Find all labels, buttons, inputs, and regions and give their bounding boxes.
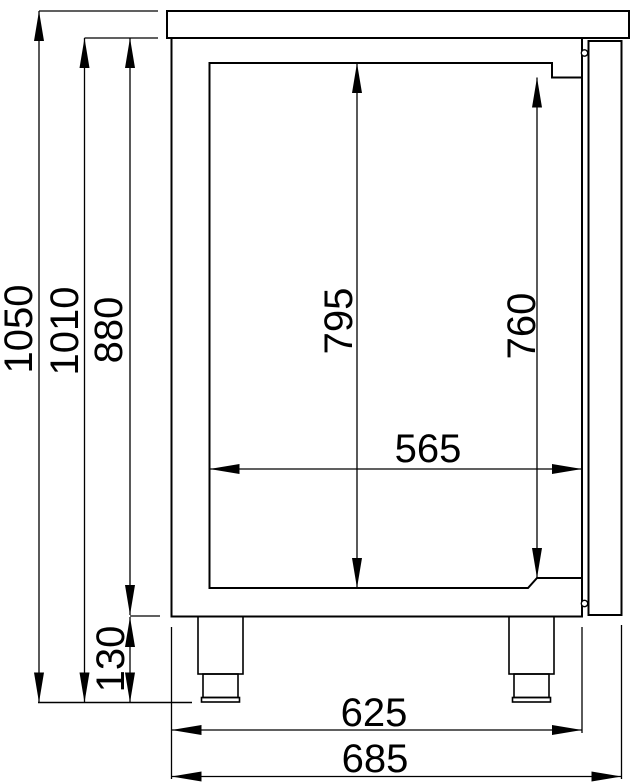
arrowhead-down xyxy=(80,673,90,703)
arrowhead-down xyxy=(125,585,135,615)
dim-height-under-worktop-label: 1010 xyxy=(43,287,87,376)
leg-left xyxy=(198,617,243,703)
dim-interior-depth-label: 565 xyxy=(395,427,462,471)
leg-left-foot xyxy=(203,674,238,698)
arrowhead-down xyxy=(34,673,44,703)
leg-right-foot-pad xyxy=(513,698,551,703)
arrowhead-right xyxy=(552,725,582,735)
dim-interior-height-back: 795 xyxy=(317,63,362,588)
arrowhead-up xyxy=(352,63,362,93)
arrowhead-right xyxy=(552,464,582,474)
dim-leg-height: 130 xyxy=(89,617,135,703)
worktop-outline xyxy=(167,11,629,38)
hinge-pin-top xyxy=(581,50,587,56)
dim-overall-depth-label: 685 xyxy=(342,737,409,781)
arrowhead-right xyxy=(592,772,622,782)
dimension-drawing: 1050 1010 880 130 795 760 xyxy=(0,0,644,783)
arrowhead-up xyxy=(80,38,90,68)
dim-body-height-label: 880 xyxy=(87,297,131,364)
dim-interior-height-front: 760 xyxy=(500,78,544,579)
arrowhead-up xyxy=(125,38,135,68)
arrowhead-down xyxy=(352,558,362,588)
arrowhead-left xyxy=(172,725,202,735)
leg-left-upper xyxy=(198,617,243,675)
leg-right-foot xyxy=(514,674,549,698)
dim-interior-depth: 565 xyxy=(210,427,583,474)
dim-body-depth-label: 625 xyxy=(341,691,408,735)
dim-body-height: 880 xyxy=(87,38,160,616)
dim-interior-height-front-label: 760 xyxy=(500,293,544,360)
arrowhead-up xyxy=(532,78,542,108)
leg-right-upper xyxy=(509,617,554,675)
door-outline xyxy=(589,41,622,615)
arrowhead-left xyxy=(210,464,240,474)
dim-leg-height-label: 130 xyxy=(89,626,133,693)
dim-height-under-worktop: 1010 xyxy=(43,38,158,703)
arrowhead-left xyxy=(172,772,202,782)
technical-drawing-canvas: 1050 1010 880 130 795 760 xyxy=(0,0,644,783)
dim-interior-height-back-label: 795 xyxy=(317,288,361,355)
dim-overall-height-label: 1050 xyxy=(0,285,41,374)
leg-right xyxy=(509,617,554,703)
arrowhead-up xyxy=(34,11,44,41)
leg-left-foot-pad xyxy=(202,698,240,703)
arrowhead-down xyxy=(532,548,542,578)
hinge-pin-bottom xyxy=(581,600,587,606)
